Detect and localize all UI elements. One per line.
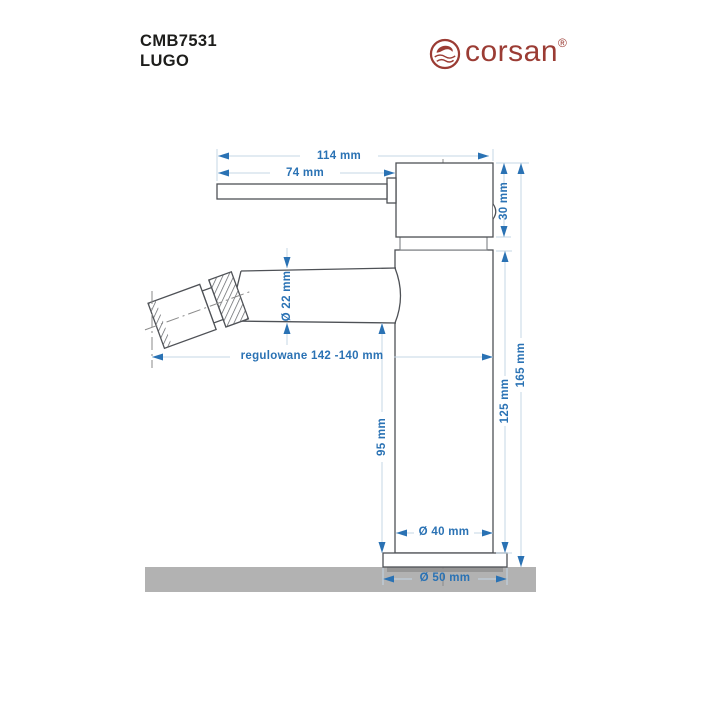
dim-total-height-label: 165 mm	[515, 343, 527, 388]
dim-base-diameter-label: Ø 50 mm	[420, 572, 471, 584]
faucet-head	[396, 163, 496, 250]
dim-adjustable-reach-label: regulowane 142 -140 mm	[241, 350, 384, 362]
faucet-body	[229, 250, 493, 553]
dim-body-height-label: 125 mm	[499, 379, 511, 424]
mounting-surface	[145, 567, 536, 592]
dim-total-width-label: 114 mm	[317, 150, 361, 162]
dim-height-to-spout-label: 95 mm	[376, 418, 388, 456]
lever-handle	[217, 178, 396, 203]
head-side-detail	[493, 204, 496, 219]
dim-body-diameter-label: Ø 40 mm	[419, 526, 470, 538]
dim-lever-length-label: 74 mm	[286, 167, 324, 179]
base-plate	[383, 553, 507, 567]
lever-joint	[387, 178, 396, 203]
faucet-technical-drawing: 114 mm 74 mm 30 mm 165 mm Ø 22 mm regulo…	[0, 0, 720, 720]
collar-ring	[400, 237, 487, 250]
spec-sheet-page: CMB7531 LUGO corsan ®	[0, 0, 720, 720]
dim-head-height-label: 30 mm	[498, 182, 510, 220]
dim-spout-diameter-label: Ø 22 mm	[281, 271, 293, 322]
